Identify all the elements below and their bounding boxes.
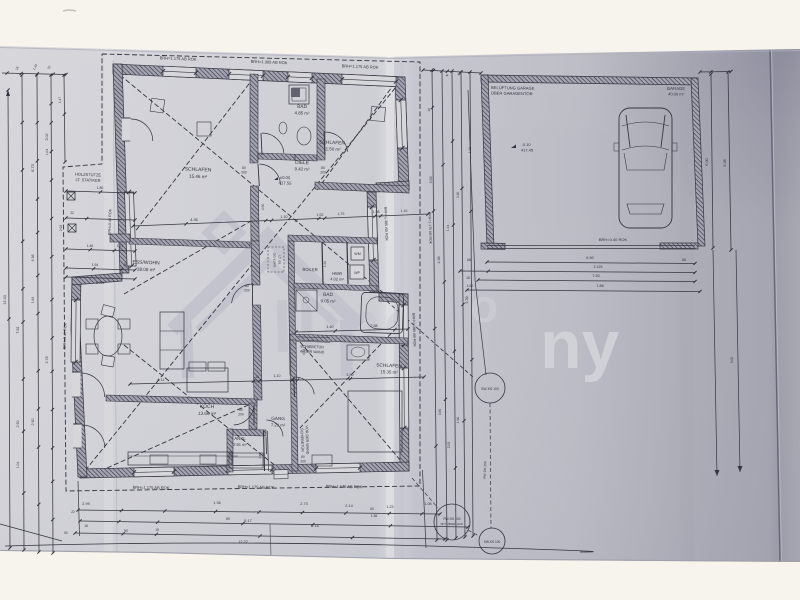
- svg-text:1.47: 1.47: [58, 96, 62, 103]
- svg-text:2.14: 2.14: [345, 504, 352, 508]
- svg-text:3.59: 3.59: [429, 176, 433, 183]
- svg-text:2.78: 2.78: [45, 356, 49, 363]
- svg-text:9.05 m²: 9.05 m²: [321, 298, 337, 304]
- svg-text:DIELE: DIELE: [295, 160, 309, 166]
- svg-text:3.02: 3.02: [45, 133, 49, 140]
- svg-text:1.52: 1.52: [467, 284, 474, 288]
- svg-text:2.50: 2.50: [16, 420, 20, 427]
- svg-text:6.11: 6.11: [157, 378, 164, 382]
- svg-text:40.00 m²: 40.00 m²: [668, 91, 685, 96]
- svg-text:BAD: BAD: [297, 104, 308, 110]
- svg-text:WP: WP: [354, 271, 360, 275]
- svg-text:2.99: 2.99: [82, 502, 89, 506]
- svg-text:18: 18: [466, 276, 470, 280]
- svg-text:6.38: 6.38: [723, 159, 727, 166]
- svg-text:1.10: 1.10: [280, 215, 287, 219]
- svg-text:80: 80: [239, 408, 243, 412]
- svg-text:ny: ny: [540, 307, 620, 383]
- svg-text:-0.10: -0.10: [521, 142, 531, 147]
- svg-text:1.36: 1.36: [372, 210, 379, 214]
- svg-text:80: 80: [321, 166, 325, 170]
- svg-text:7.50: 7.50: [592, 274, 599, 278]
- svg-text:1.23: 1.23: [387, 505, 394, 509]
- svg-text:1.14: 1.14: [446, 224, 450, 231]
- svg-text:3.85: 3.85: [438, 408, 442, 415]
- svg-text:1.10: 1.10: [274, 374, 281, 378]
- svg-text:3.30: 3.30: [456, 191, 460, 198]
- svg-text:BRH=1.175 AB ROK: BRH=1.175 AB ROK: [238, 484, 275, 490]
- svg-text:4.85 m²: 4.85 m²: [295, 110, 311, 116]
- svg-text:OG-LUKE: OG-LUKE: [272, 252, 277, 268]
- svg-text:2.58: 2.58: [370, 324, 377, 328]
- svg-text:4.02 m²: 4.02 m²: [330, 276, 344, 281]
- svg-text:9.42 m²: 9.42 m²: [295, 166, 311, 172]
- svg-text:1.40: 1.40: [326, 325, 333, 329]
- svg-text:BAD: BAD: [323, 292, 334, 298]
- svg-text:BOILER: BOILER: [302, 267, 318, 273]
- svg-text:KOCH: KOCH: [200, 404, 215, 410]
- svg-text:50: 50: [64, 531, 68, 535]
- svg-text:13.66 m²: 13.66 m²: [198, 411, 217, 416]
- svg-text:4.52: 4.52: [302, 349, 306, 356]
- svg-text:GANG: GANG: [271, 416, 285, 421]
- svg-text:RW-SS 100: RW-SS 100: [443, 517, 460, 521]
- svg-text:MIT ÜBERLAUF: MIT ÜBERLAUF: [441, 522, 464, 526]
- svg-text:1.04: 1.04: [16, 461, 20, 468]
- svg-text:o: o: [470, 280, 498, 332]
- svg-text:200: 200: [238, 413, 244, 417]
- svg-text:60: 60: [370, 507, 374, 511]
- svg-text:LT. STATIKER: LT. STATIKER: [75, 177, 100, 183]
- svg-text:68: 68: [467, 258, 471, 262]
- svg-text:18: 18: [84, 524, 88, 528]
- svg-text:3.90: 3.90: [346, 373, 353, 377]
- svg-text:4.38: 4.38: [437, 256, 441, 263]
- svg-text:2.02: 2.02: [447, 441, 451, 448]
- svg-text:6.00: 6.00: [730, 356, 734, 363]
- svg-text:1.52: 1.52: [316, 213, 323, 217]
- svg-text:14.40: 14.40: [3, 295, 7, 305]
- svg-text:+: +: [446, 73, 449, 79]
- svg-text:1.36: 1.36: [371, 514, 378, 518]
- svg-text:4.36: 4.36: [190, 217, 198, 222]
- svg-text:4.50: 4.50: [261, 203, 265, 210]
- svg-text:2.92: 2.92: [59, 224, 63, 231]
- svg-text:SCHIEBETÜR: SCHIEBETÜR: [300, 428, 305, 452]
- svg-text:HWR: HWR: [332, 271, 342, 276]
- svg-text:1.36: 1.36: [258, 453, 262, 459]
- svg-text:SW-KS 100: SW-KS 100: [484, 540, 501, 544]
- svg-text:1.23: 1.23: [117, 244, 123, 248]
- svg-text:3.925: 3.925: [96, 281, 105, 285]
- svg-text:38.08 m²: 38.08 m²: [137, 267, 156, 273]
- svg-text:1.83: 1.83: [31, 296, 35, 303]
- svg-text:417.45: 417.45: [521, 148, 534, 153]
- svg-text:WM: WM: [354, 252, 360, 256]
- svg-text:200: 200: [244, 289, 250, 293]
- svg-text:2.91 m²: 2.91 m²: [233, 442, 247, 447]
- svg-text:2.73: 2.73: [300, 502, 307, 506]
- svg-text:ANKL: ANKL: [234, 436, 246, 441]
- svg-text:1.50: 1.50: [323, 261, 327, 268]
- svg-text:1.75: 1.75: [337, 212, 344, 216]
- svg-text:2.125: 2.125: [594, 265, 603, 269]
- svg-text:1.90: 1.90: [456, 417, 460, 424]
- svg-text:6.73: 6.73: [31, 164, 35, 172]
- svg-text:ÜBER GARAGENTOR: ÜBER GARAGENTOR: [491, 91, 533, 97]
- svg-text:7.22 m²: 7.22 m²: [271, 422, 286, 427]
- svg-text:SW-KS 100: SW-KS 100: [481, 387, 499, 391]
- svg-text:417.55: 417.55: [279, 180, 293, 185]
- svg-text:BRH=0.40 ROK: BRH=0.40 ROK: [599, 237, 628, 242]
- svg-text:7.61: 7.61: [16, 326, 20, 334]
- svg-text:200: 200: [300, 460, 306, 464]
- svg-text:200: 200: [320, 171, 326, 175]
- svg-text:ESS/WOHN: ESS/WOHN: [132, 260, 160, 267]
- svg-text:1.36: 1.36: [213, 501, 220, 505]
- svg-text:200: 200: [241, 171, 247, 175]
- svg-text:SCHLAFEN: SCHLAFEN: [185, 167, 212, 174]
- svg-text:1.46: 1.46: [87, 244, 94, 248]
- svg-text:5.17: 5.17: [244, 519, 251, 523]
- svg-text:4.36: 4.36: [31, 254, 35, 261]
- svg-text:1.80: 1.80: [97, 186, 104, 190]
- svg-text:45: 45: [123, 263, 127, 267]
- svg-text:80: 80: [301, 455, 305, 459]
- svg-text:18: 18: [155, 528, 159, 532]
- svg-text:1.94: 1.94: [92, 263, 99, 267]
- svg-text:2.60: 2.60: [293, 155, 297, 162]
- svg-text:80: 80: [242, 166, 246, 170]
- svg-text:80: 80: [245, 284, 249, 288]
- svg-text:22: 22: [71, 510, 75, 514]
- svg-text:LT. BL: LT. BL: [277, 255, 281, 264]
- svg-text:22: 22: [70, 211, 74, 215]
- svg-text:6.00: 6.00: [705, 158, 709, 165]
- svg-text:BRH=1.175 AB ROK: BRH=1.175 AB ROK: [326, 484, 363, 490]
- svg-text:SCHIEBETÜR: SCHIEBETÜR: [300, 345, 324, 350]
- svg-text:7.86: 7.86: [596, 284, 603, 288]
- svg-text:6.50: 6.50: [586, 256, 593, 260]
- svg-text:12: 12: [294, 219, 298, 223]
- svg-text:11.50 m²: 11.50 m²: [323, 146, 341, 152]
- svg-text:18: 18: [427, 108, 431, 112]
- svg-text:1.10: 1.10: [400, 209, 407, 213]
- svg-text:BRH=1.175 AB ROK: BRH=1.175 AB ROK: [133, 485, 170, 491]
- svg-text:1.08: 1.08: [425, 502, 432, 506]
- svg-text:2.50: 2.50: [31, 418, 35, 425]
- svg-text:6.18: 6.18: [311, 524, 318, 528]
- svg-text:68: 68: [682, 258, 686, 262]
- svg-text:89: 89: [226, 517, 230, 521]
- svg-text:50: 50: [124, 529, 128, 533]
- svg-text:18: 18: [255, 375, 259, 379]
- svg-text:GARAGE: GARAGE: [667, 86, 686, 91]
- svg-text:1.04: 1.04: [45, 149, 49, 156]
- svg-text:12: 12: [290, 378, 294, 382]
- svg-text:RW DN 150: RW DN 150: [483, 461, 488, 479]
- svg-text:5.39: 5.39: [465, 296, 469, 303]
- svg-text:15.35 m²: 15.35 m²: [380, 369, 398, 375]
- svg-text:15.46 m²: 15.46 m²: [189, 174, 208, 180]
